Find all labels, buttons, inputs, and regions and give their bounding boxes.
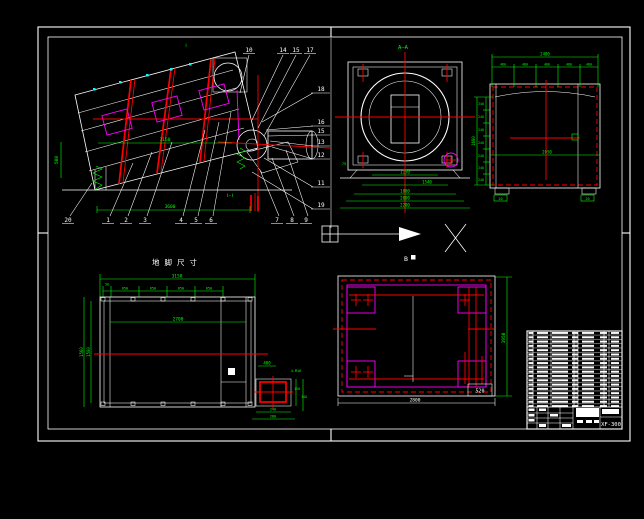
anchor-bolts — [101, 298, 252, 406]
aa-dim-3: 1800 — [400, 189, 410, 194]
balloon-6: 6 — [209, 217, 213, 224]
dim-height: 500 — [54, 156, 60, 164]
balloon-19: 19 — [317, 202, 325, 209]
end-view: 2050 2400 480 480 480 480 480 1680 240 2… — [471, 52, 600, 202]
b-view-dim-right: 1950 — [501, 332, 507, 343]
end-dim-t4: 480 — [566, 63, 572, 67]
end-dim-l6: 240 — [478, 166, 484, 170]
balloon-15b: 15 — [317, 128, 325, 135]
balloon-12: 12 — [317, 152, 325, 159]
balloon-callouts-top: 10 14 15 17 — [240, 47, 316, 136]
end-dim-t1: 480 — [500, 63, 506, 67]
section-aa-view: A—A 1150 1540 1 — [335, 45, 475, 213]
bolt-crosses — [351, 294, 482, 384]
b-view-label: B — [404, 255, 408, 263]
balloon-14: 14 — [279, 47, 287, 54]
section-mark: Ⅰ — [185, 43, 186, 49]
cad-canvas: 3150 3600 500 Ⅰ-Ⅰ Ⅰ 20 1 2 3 4 5 6 7 8 9 — [0, 0, 644, 519]
end-dim-l1: 240 — [478, 102, 484, 106]
direction-arrow-symbol — [399, 227, 421, 241]
detail-bolt-label: 4-M16 — [291, 369, 302, 373]
balloon-11: 11 — [317, 180, 325, 187]
x-mark-symbol — [445, 224, 466, 252]
aa-dim-5: 2200 — [400, 203, 410, 208]
foundation-dim-left-outer: 1560 — [79, 347, 84, 357]
cad-drawing-sheet: 3150 3600 500 Ⅰ-Ⅰ Ⅰ 20 1 2 3 4 5 6 7 8 9 — [0, 0, 644, 519]
end-dim-l5: 240 — [478, 154, 484, 158]
company-stamp — [602, 409, 619, 414]
drawing-title-stamp — [576, 408, 599, 417]
balloon-7: 7 — [275, 217, 279, 224]
end-dim-t2: 480 — [522, 63, 528, 67]
dim-body-length: 3150 — [160, 137, 171, 143]
foot-label-left: 20 — [498, 197, 502, 201]
symbols — [322, 224, 466, 252]
detail-dim-bottom1: 240 — [270, 408, 276, 412]
b-view-tag: 520 — [475, 389, 484, 395]
aa-dim-side: 75 — [342, 162, 346, 166]
balloon-9: 9 — [304, 217, 308, 224]
foundation-title: 地脚尺寸 — [152, 257, 202, 267]
end-dim-t5: 480 — [586, 63, 592, 67]
balloon-4: 4 — [179, 217, 183, 224]
balloon-13: 13 — [317, 139, 325, 146]
balloon-3: 3 — [143, 217, 147, 224]
end-dim-l3: 240 — [478, 128, 484, 132]
section-aa-label: A—A — [398, 45, 409, 51]
balloon-10: 10 — [245, 47, 253, 54]
end-dim-inner: 2050 — [542, 150, 552, 155]
foundation-dim-c4: 650 — [206, 287, 212, 291]
balloon-5: 5 — [194, 217, 198, 224]
b-view-dim-bottom: 2800 — [410, 398, 421, 404]
aa-dim-4: 2000 — [400, 196, 410, 201]
detail-dim-bottom2: 280 — [270, 415, 276, 419]
end-dim-t3: 480 — [544, 63, 550, 67]
end-dim-left-total: 1680 — [471, 136, 476, 146]
end-dim-l7: 240 — [478, 178, 484, 182]
foundation-dim-total: 3150 — [172, 274, 183, 280]
title-block: XF-300 — [527, 331, 622, 429]
foundation-dim-left-inner: 1500 — [86, 347, 91, 357]
detail-dim-top: 400 — [263, 361, 271, 366]
end-dim-top-total: 2400 — [540, 52, 550, 57]
foundation-dim-inner: 2700 — [173, 317, 184, 323]
foundation-dim-c3: 650 — [178, 287, 184, 291]
balloon-16: 16 — [317, 119, 325, 126]
detail-dim-right2: 140 — [301, 395, 307, 399]
balloon-20: 20 — [64, 217, 72, 224]
balloon-17: 17 — [306, 47, 314, 54]
dim-base-length: 3600 — [165, 204, 176, 210]
aa-dim-1: 1150 — [400, 170, 410, 175]
side-view: 3150 3600 500 Ⅰ-Ⅰ Ⅰ — [54, 38, 331, 228]
anchor-pocket-detail: 400 4-M16 150 140 240 280 — [252, 361, 307, 420]
balloon-8: 8 — [290, 217, 294, 224]
aa-dim-2: 1540 — [422, 180, 432, 185]
foot-label-right: 20 — [585, 197, 589, 201]
drawing-number: XF-300 — [601, 422, 621, 428]
foundation-dim-50: 50 — [105, 283, 109, 287]
end-dim-l4: 240 — [478, 141, 484, 145]
foundation-dim-c2: 650 — [150, 287, 156, 291]
balloon-2: 2 — [124, 217, 128, 224]
b-view: B 520 1950 — [333, 255, 512, 406]
foundation-dim-c1: 650 — [122, 287, 128, 291]
section-label: Ⅰ-Ⅰ — [227, 193, 233, 199]
balloon-1: 1 — [106, 217, 110, 224]
foundation-plan-view: 地脚尺寸 3150 50 650 650 650 650 1560 1500 — [79, 257, 307, 419]
detail-dim-right1: 150 — [294, 387, 300, 391]
balloon-18: 18 — [317, 86, 325, 93]
balloon-15: 15 — [292, 47, 300, 54]
end-dim-l2: 240 — [478, 115, 484, 119]
